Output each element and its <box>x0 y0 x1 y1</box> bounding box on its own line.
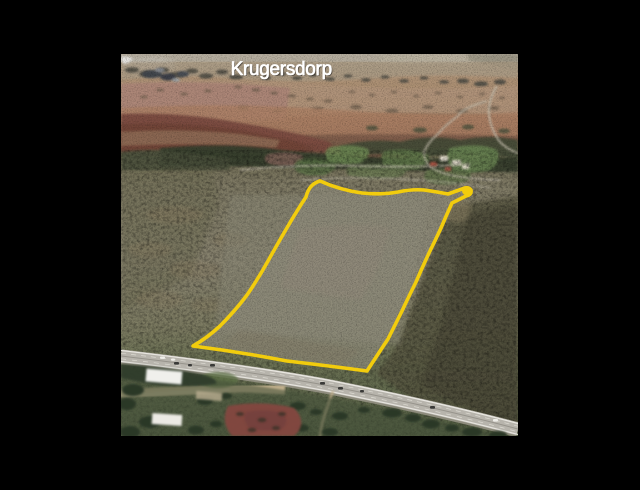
svg-text:Krugersdorp: Krugersdorp <box>231 59 332 80</box>
